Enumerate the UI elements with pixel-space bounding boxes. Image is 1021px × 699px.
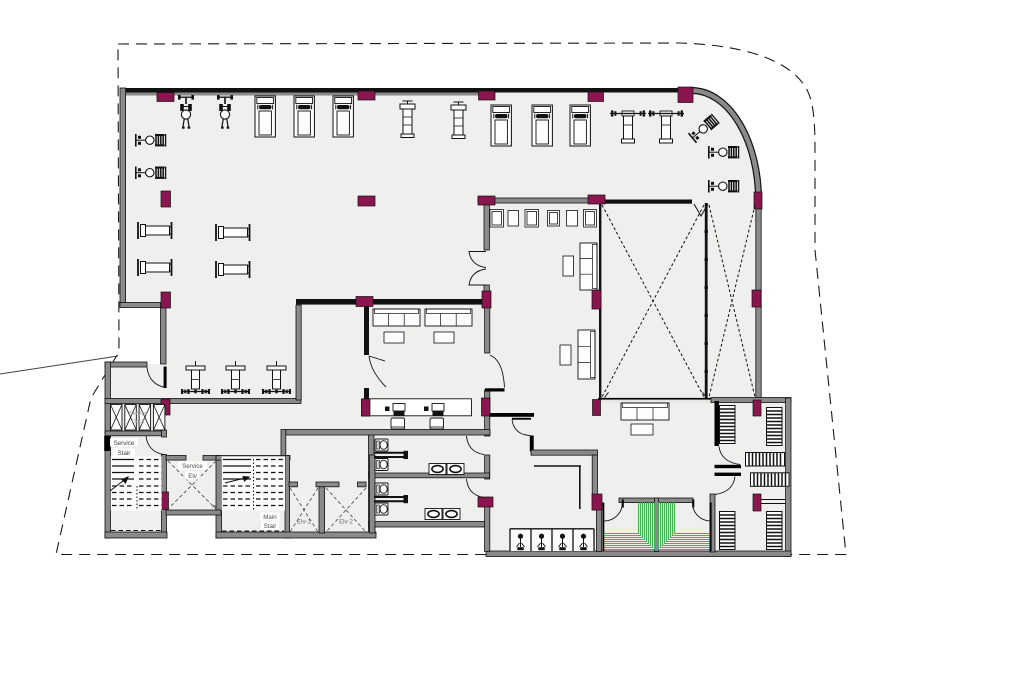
svg-text:Service: Service (182, 463, 203, 470)
svg-text:Elv-1: Elv-1 (297, 520, 311, 526)
svg-text:Service: Service (129, 411, 147, 417)
svg-text:Service: Service (114, 440, 135, 447)
svg-text:Elv: Elv (188, 473, 198, 480)
svg-text:Main: Main (263, 514, 277, 521)
svg-text:Stair: Stair (264, 523, 277, 530)
svg-text:Dock: Dock (132, 419, 145, 425)
svg-text:Elv-2: Elv-2 (339, 520, 353, 526)
svg-text:Stair: Stair (118, 450, 131, 457)
